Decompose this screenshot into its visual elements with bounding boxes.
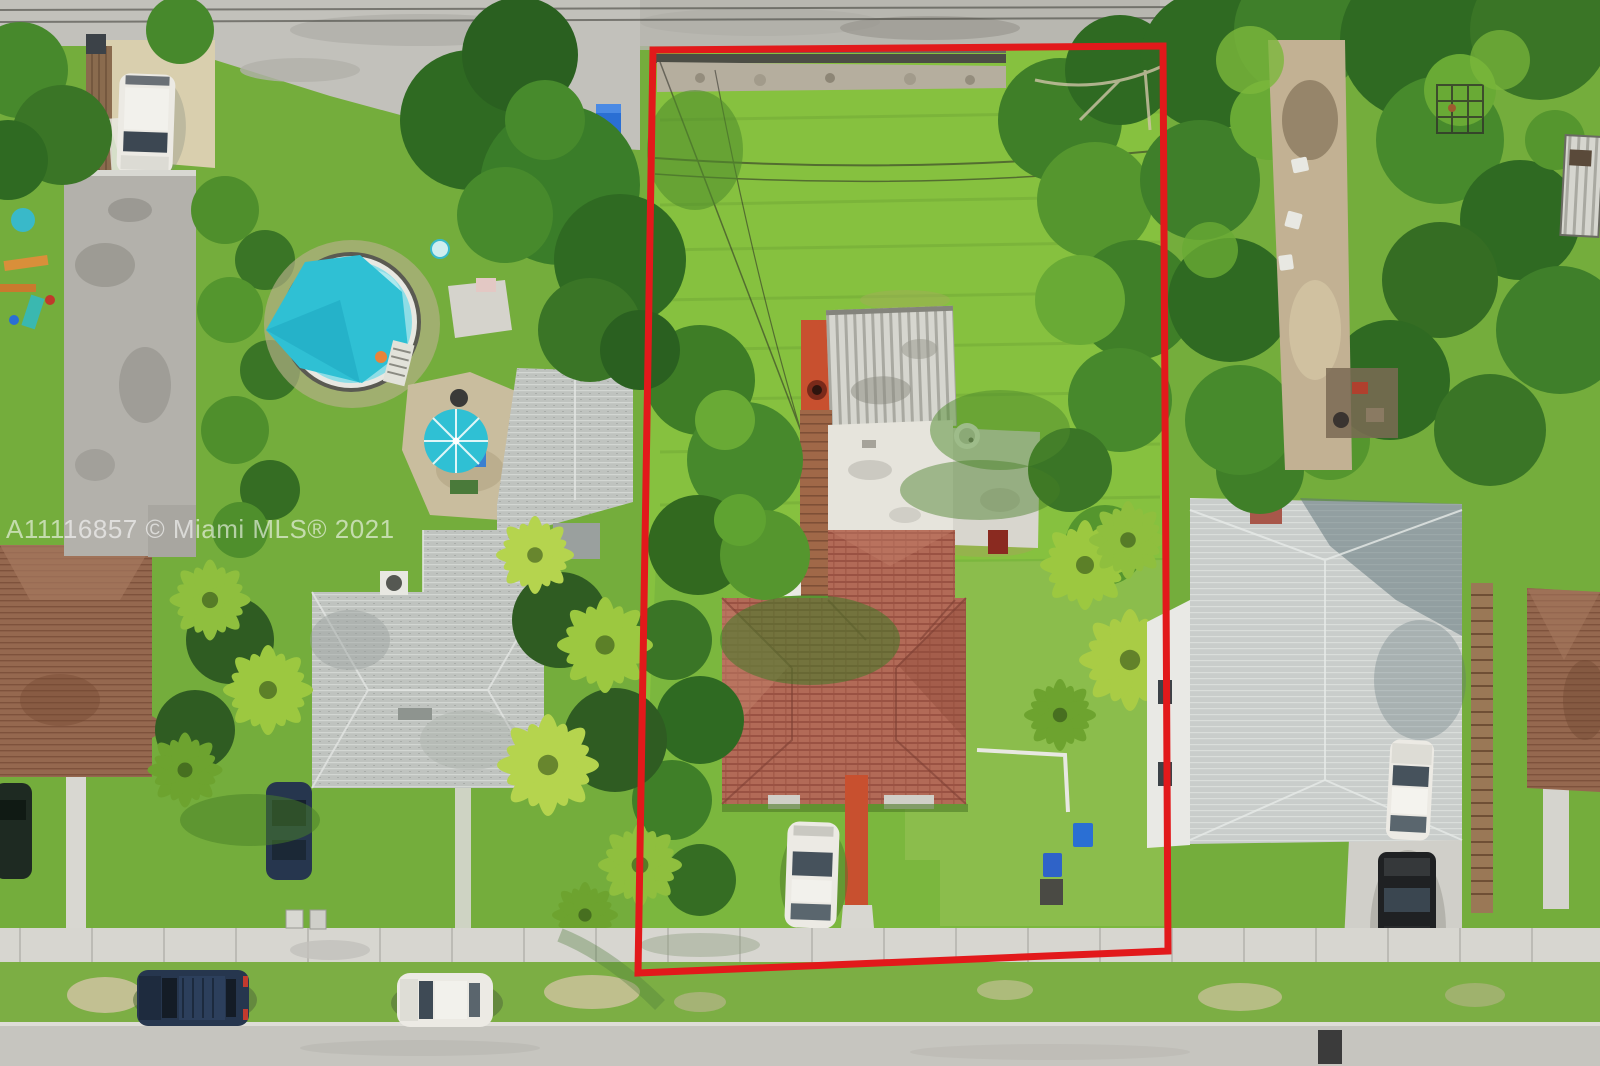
right-parked-white-car (1385, 739, 1434, 841)
outbuilding-gray-roof (64, 170, 196, 557)
metal-shed (1560, 135, 1600, 237)
far-left-walkway (66, 777, 86, 935)
driveway-apron (841, 905, 874, 928)
red-driveway (845, 775, 868, 907)
boardwalk-stairs (1471, 583, 1493, 913)
garden-bench (450, 480, 478, 494)
left-house-ac-unit (380, 571, 408, 595)
far-left-parked-car (0, 783, 32, 879)
left-house-walkway (455, 788, 471, 930)
aerial-listing-photo: A11116857 © Miami MLS® 2021 (0, 0, 1600, 1066)
right-yard-palm (1089, 501, 1167, 579)
alley-trash-bin (86, 34, 106, 54)
pool-float (375, 351, 387, 363)
far-left-house-roof (0, 545, 170, 777)
street-band (0, 910, 1600, 1066)
mls-watermark: A11116857 © Miami MLS® 2021 (6, 514, 395, 544)
street-parked-white-car (391, 973, 503, 1027)
street-parked-suv (133, 970, 257, 1026)
metal-shed-roof (826, 306, 957, 430)
patio-umbrella (424, 409, 488, 473)
kiddie-disc (11, 208, 35, 232)
far-right-house-roof (1527, 588, 1600, 792)
street-trash-bin (1318, 1030, 1342, 1064)
roof-hatch (398, 708, 432, 720)
grill (450, 389, 468, 407)
rear-fence (656, 48, 1006, 92)
street (0, 1024, 1600, 1066)
sidewalk (0, 928, 1600, 962)
